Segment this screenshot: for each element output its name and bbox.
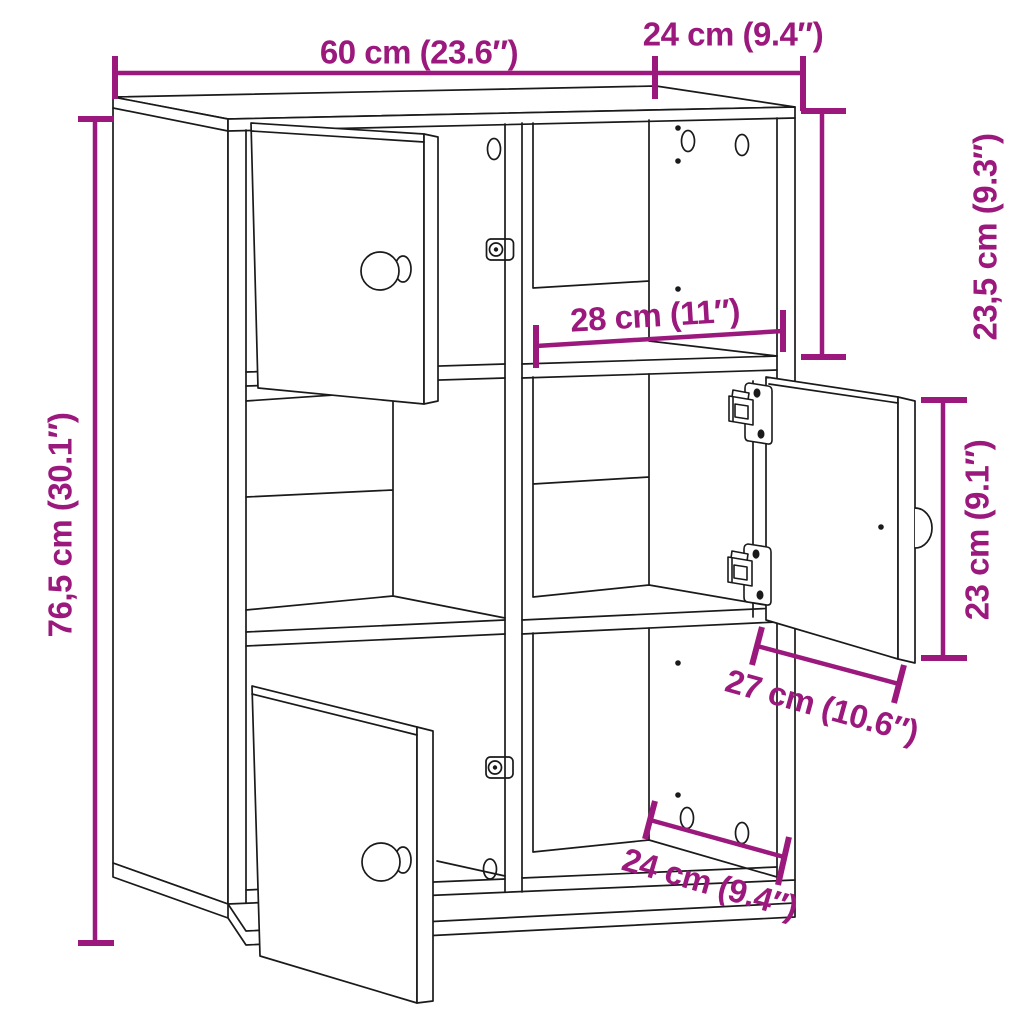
dim-height-left	[78, 119, 114, 943]
cabinet-line-drawing	[113, 86, 932, 1003]
door-bottom-left-edge-band	[417, 727, 433, 1003]
dim-top-compartment-height	[801, 111, 846, 357]
door-bottom-left	[252, 686, 433, 1003]
knob-middle-right	[915, 508, 932, 548]
label-width-top: 60 cm (23.6″)	[320, 34, 518, 71]
label-top-compartment-height: 23,5 cm (9.3″)	[967, 134, 1004, 341]
door-top-left	[251, 123, 438, 404]
dimension-diagram: 60 cm (23.6″) 24 cm (9.4″) 76,5 cm (30.1…	[0, 0, 1024, 1024]
label-door-height: 23 cm (9.1″)	[959, 440, 996, 620]
label-height-left: 76,5 cm (30.1″)	[42, 413, 79, 638]
label-depth-top: 24 cm (9.4″)	[643, 16, 823, 53]
door-middle-right-panel	[766, 377, 898, 659]
cabinet-left-side-panel	[113, 97, 228, 904]
door-top-left-edge-band	[424, 134, 438, 404]
door-bottom-left-panel	[252, 686, 417, 1003]
door-middle-right-edge-band	[898, 397, 915, 663]
